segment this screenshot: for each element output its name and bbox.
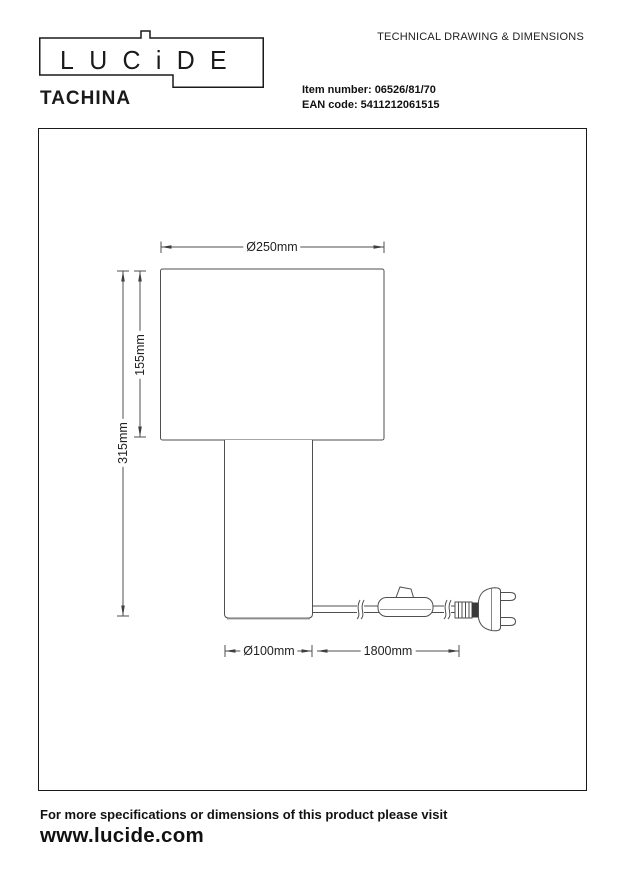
label-cable-length: 1800mm <box>361 644 416 658</box>
plug-strain-relief <box>455 602 479 618</box>
lamp-base <box>225 440 313 618</box>
cable-break-right <box>444 600 451 619</box>
label-shade-height: 155mm <box>133 331 147 379</box>
plug-pin-bottom <box>501 618 516 626</box>
label-base-diameter: Ø100mm <box>240 644 297 658</box>
plug-pin-top <box>501 593 516 601</box>
spec-sheet-page: LUCiDE TECHNICAL DRAWING & DIMENSIONS TA… <box>0 0 620 877</box>
switch-toggle <box>396 587 414 598</box>
footer-website: www.lucide.com <box>40 824 204 848</box>
label-shade-diameter: Ø250mm <box>243 240 300 254</box>
cable-break-left <box>357 600 364 619</box>
plug-collar <box>472 603 479 618</box>
lamp-shade <box>161 269 385 440</box>
inline-switch <box>378 587 433 617</box>
power-plug <box>479 588 501 631</box>
label-total-height: 315mm <box>116 419 130 467</box>
footer-note: For more specifications or dimensions of… <box>40 807 447 822</box>
technical-drawing <box>0 0 620 877</box>
